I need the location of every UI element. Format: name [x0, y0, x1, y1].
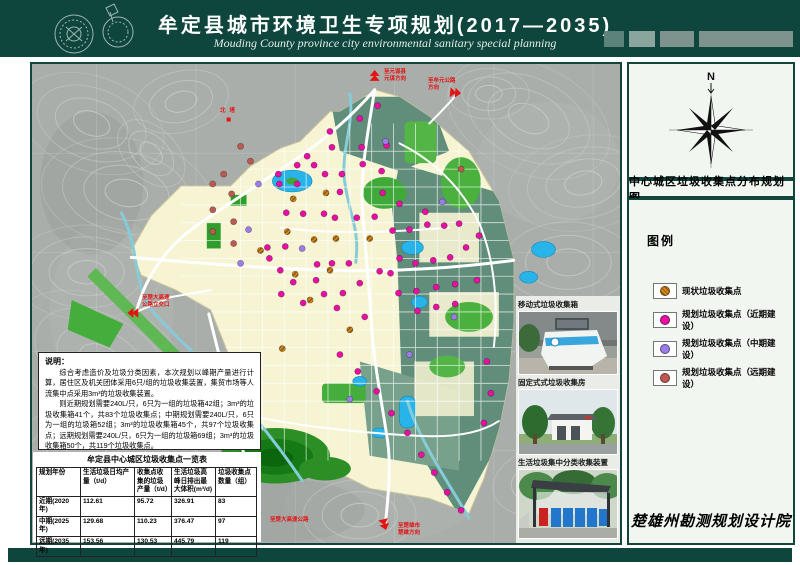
- photo-sorting-shelter: [518, 469, 618, 539]
- table-title: 牟定县中心城区垃圾收集点一览表: [33, 454, 261, 465]
- arrow-southeast-label: 至楚雄市楚雄方向: [398, 523, 420, 536]
- legend-swatch: [653, 312, 677, 328]
- notes-box: 说明： 综合考虑造价及垃圾分类因素，本次规划以峰期产量进行计算，居住区及机关团体…: [38, 352, 261, 450]
- legend-item: 现状垃圾收集点: [653, 276, 787, 305]
- notes-title: 说明：: [45, 356, 254, 367]
- legend-label: 规划垃圾收集点（中期建设）: [682, 337, 787, 361]
- north-letter: N: [707, 71, 715, 83]
- summary-table-box: 牟定县中心城区垃圾收集点一览表 规划年份生活垃圾日均产量（t/d）收集点收集的垃…: [33, 452, 261, 542]
- legend-label: 现状垃圾收集点: [682, 285, 742, 297]
- institute-signature: 楚雄州勘测规划设计院: [629, 510, 793, 531]
- legend-title: 图例: [647, 232, 675, 249]
- photo-caption: 生活垃圾集中分类收集装置: [518, 457, 618, 468]
- legend-swatch: [653, 341, 677, 357]
- poster-page: 牟定县城市环境卫生专项规划(2017—2035) Mouding County …: [0, 0, 800, 565]
- arrow-southwest-label: 至楚大高速公路: [270, 517, 309, 524]
- north-pagoda-label: 北塔: [220, 108, 239, 115]
- header-deco-blocks: [604, 31, 793, 47]
- arrow-west-label: 至楚大高速公路立交口: [142, 295, 170, 308]
- arrow-north-label: 至元谋县元谋方向: [384, 69, 406, 82]
- header-band: 牟定县城市环境卫生专项规划(2017—2035) Mouding County …: [0, 0, 800, 57]
- north-arrow-panel: N: [627, 62, 795, 179]
- legend-label: 规划垃圾收集点（远期建设）: [682, 366, 787, 390]
- map-title-bar: 中心城区垃圾收集点分布规划图: [627, 179, 795, 198]
- planning-map: 北塔 至元谋县元谋方向 至牟元公路方向 至楚大高速公路立交口 至楚大高速公路 至…: [30, 62, 622, 545]
- photo-fixed-collection-house: [518, 389, 618, 455]
- photo-mobile-collection-box: [518, 311, 618, 375]
- arrow-northeast-label: 至牟元公路方向: [428, 78, 456, 91]
- legend-label: 规划垃圾收集点（近期建设）: [682, 308, 787, 332]
- legend-item: 规划垃圾收集点（远期建设）: [653, 363, 787, 392]
- legend-items: 现状垃圾收集点 规划垃圾收集点（近期建设） 规划垃圾收集点（中期建设） 规划垃圾…: [653, 276, 787, 392]
- legend-item: 规划垃圾收集点（近期建设）: [653, 305, 787, 334]
- pagoda-marker: [227, 118, 231, 122]
- photo-caption: 固定式式垃圾收集房: [518, 377, 618, 388]
- summary-table: 规划年份生活垃圾日均产量（t/d）收集点收集的垃圾产量（t/d）生活垃圾高峰日排…: [36, 467, 257, 557]
- compass-icon: N: [629, 64, 793, 177]
- legend-swatch: [653, 370, 677, 386]
- legend-swatch: [653, 283, 677, 299]
- photo-caption: 移动式垃圾收集箱: [518, 299, 618, 310]
- legend-item: 规划垃圾收集点（中期建设）: [653, 334, 787, 363]
- notes-paragraph: 则近期规划需要240L/只，6只为一组的垃圾箱42组；3m³的垃圾收集箱41个，…: [45, 399, 254, 451]
- notes-paragraph: 综合考虑造价及垃圾分类因素，本次规划以峰期产量进行计算，居住区及机关团体采用6只…: [45, 368, 254, 399]
- seal-ornament-icon: [46, 2, 158, 55]
- page-title: 牟定县城市环境卫生专项规划(2017—2035): [150, 9, 620, 38]
- photo-column: 移动式垃圾收集箱 固定式式垃圾收集房: [516, 296, 620, 543]
- legend-panel: 图例 现状垃圾收集点 规划垃圾收集点（近期建设） 规划垃圾收集点（中期建设） 规…: [627, 198, 795, 545]
- page-subtitle: Mouding County province city environment…: [150, 36, 620, 51]
